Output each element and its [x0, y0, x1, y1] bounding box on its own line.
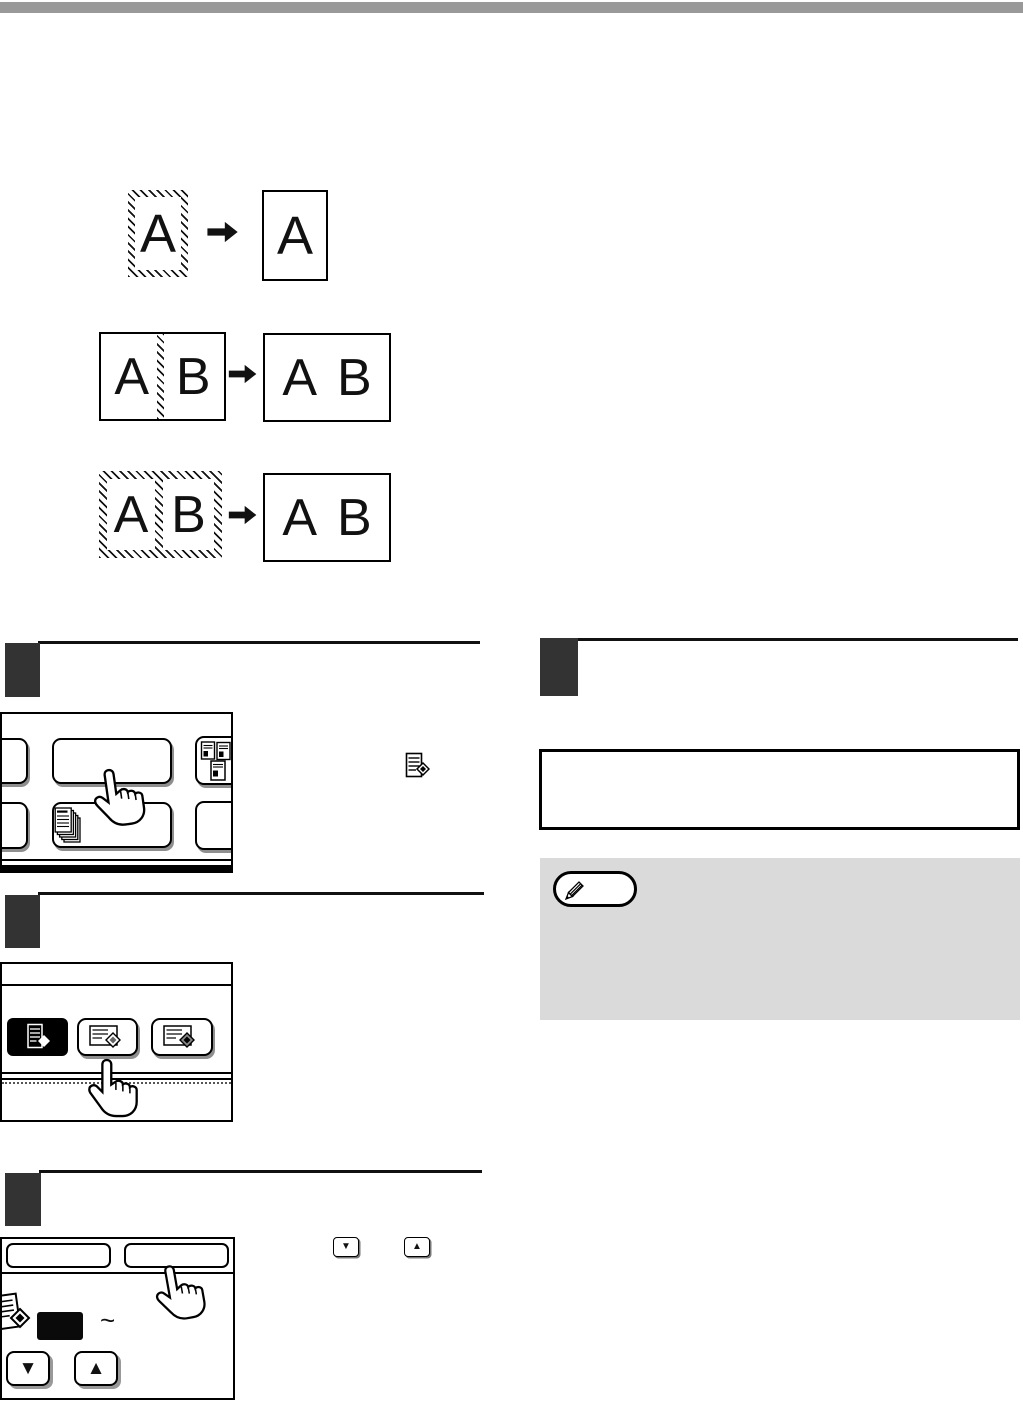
diagram3-copy-right-letter: B: [337, 492, 372, 544]
up-glyph: ▲: [87, 1358, 106, 1380]
step1-number-box: [5, 643, 40, 697]
step2-number-box: [5, 895, 40, 948]
manual-page: A A A B A B A B: [0, 0, 1023, 1411]
panel2-mode2-button: [77, 1018, 138, 1056]
emphasis-box: [539, 749, 1020, 830]
diagram1-copy-page: A: [262, 190, 328, 281]
special-modes-icon: [0, 1291, 31, 1340]
arrow-icon: [207, 221, 239, 243]
panel1-footer-line: [2, 859, 231, 861]
step4-rule: [578, 638, 1018, 641]
panel2-header-line: [2, 984, 231, 986]
diagram2-copy-page: A B: [263, 333, 391, 422]
pencil-icon: [564, 878, 587, 901]
page-top-bar: [0, 2, 1023, 13]
mode-button-2-icon: [88, 1023, 126, 1051]
diagram2-copy-right-letter: B: [337, 352, 372, 404]
panel2-mode3-button: [151, 1018, 213, 1056]
step4-number-box: [540, 638, 578, 696]
diagram1-original-letter: A: [140, 207, 176, 261]
hand-cursor: [84, 1056, 142, 1122]
id-card-copy-icon: [200, 740, 232, 790]
note-box: [540, 858, 1020, 1020]
diagram2-copy-left-letter: A: [282, 352, 317, 404]
touch-panel-special-modes: [0, 712, 233, 873]
range-tilde: ~: [100, 1307, 115, 1333]
diagram2-center-hatch-divider: [157, 334, 164, 419]
diagram2-original-left-letter: A: [114, 351, 149, 403]
diagram1-original-hatched-page: A: [128, 190, 188, 277]
panel1-right-button-row2: [195, 801, 233, 850]
note-label-capsule: [553, 871, 637, 907]
document-stack-icon: [54, 807, 81, 850]
diagram3-copy-left-letter: A: [282, 492, 317, 544]
panel1-left-button-row1: [0, 738, 28, 784]
down-key-icon: ▼: [333, 1237, 359, 1257]
step3-number-box: [5, 1173, 41, 1226]
diagram3-copy-page: A B: [263, 473, 391, 562]
down-key-button: ▼: [6, 1351, 50, 1386]
up-key-icon: ▲: [404, 1237, 430, 1257]
diagram2-original-spread: A B: [99, 332, 226, 421]
mode-black-button-icon: [25, 1022, 51, 1052]
hand-cursor: [146, 1257, 213, 1335]
up-glyph: ▲: [412, 1242, 422, 1252]
panel1-bottom-bar: [2, 865, 231, 871]
up-key-button: ▲: [74, 1351, 118, 1386]
hand-cursor: [84, 762, 155, 839]
step2-rule: [38, 892, 484, 895]
diagram2-original-right-letter: B: [176, 351, 211, 403]
diagram3-original-left-letter: A: [114, 489, 149, 541]
diagram1-copy-letter: A: [277, 209, 313, 263]
down-glyph: ▼: [19, 1358, 38, 1380]
arrow-icon: [228, 364, 258, 384]
touch-panel-setting-screen: ~ ▼ ▲: [0, 1237, 235, 1400]
panel1-left-button-row2: [0, 802, 28, 849]
panel2-mode1-button-selected: [7, 1018, 68, 1056]
arrow-icon: [228, 505, 258, 525]
diagram3-original-book: A B: [99, 471, 222, 558]
touch-panel-mode-select: [0, 962, 233, 1122]
special-modes-icon: [404, 751, 430, 786]
step3-rule: [39, 1170, 482, 1173]
down-glyph: ▼: [341, 1242, 351, 1252]
step1-rule: [38, 641, 480, 644]
panel3-value-display: [37, 1312, 83, 1340]
panel3-left-tab-button: [6, 1243, 111, 1268]
diagram3-original-right-letter: B: [171, 489, 206, 541]
mode-button-3-icon: [162, 1023, 200, 1051]
